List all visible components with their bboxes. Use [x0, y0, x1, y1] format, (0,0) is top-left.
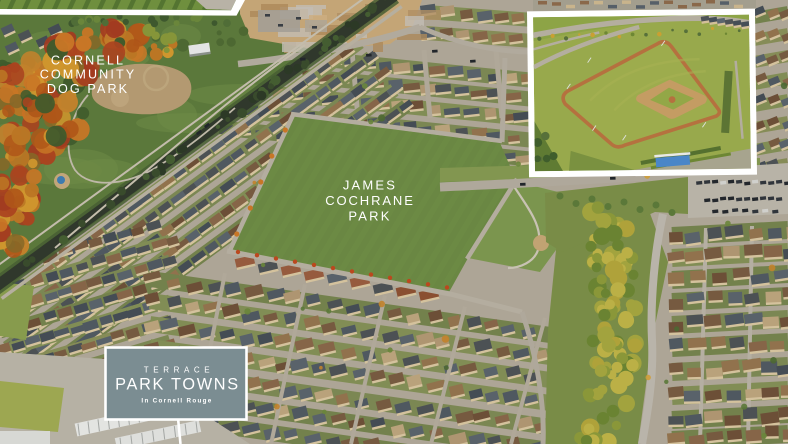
- svg-text:CORNELL: CORNELL: [51, 54, 125, 68]
- svg-text:JAMES: JAMES: [343, 178, 397, 193]
- svg-text:COCHRANE: COCHRANE: [325, 193, 415, 208]
- svg-text:In Cornell Rouge: In Cornell Rouge: [141, 398, 212, 405]
- svg-text:PARK TOWNS: PARK TOWNS: [115, 376, 240, 394]
- svg-text:DOG PARK: DOG PARK: [47, 82, 129, 96]
- svg-text:TERRACE: TERRACE: [144, 366, 214, 375]
- svg-text:COMMUNITY: COMMUNITY: [40, 68, 137, 82]
- svg-text:PARK: PARK: [348, 209, 391, 224]
